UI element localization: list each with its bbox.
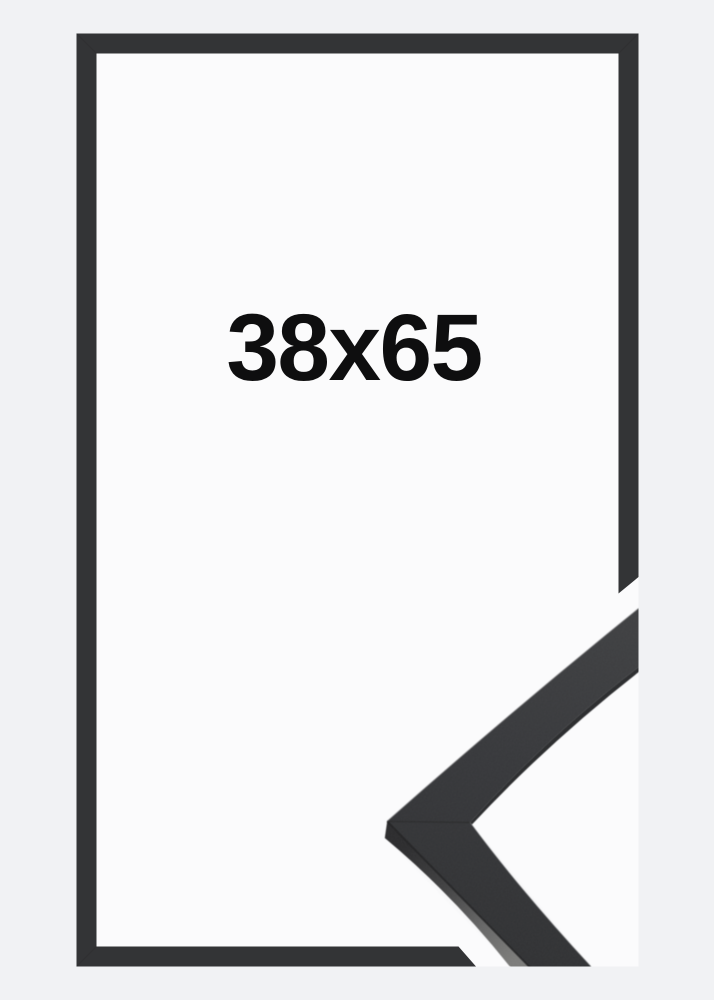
svg-text:38x65: 38x65 [226,295,481,401]
